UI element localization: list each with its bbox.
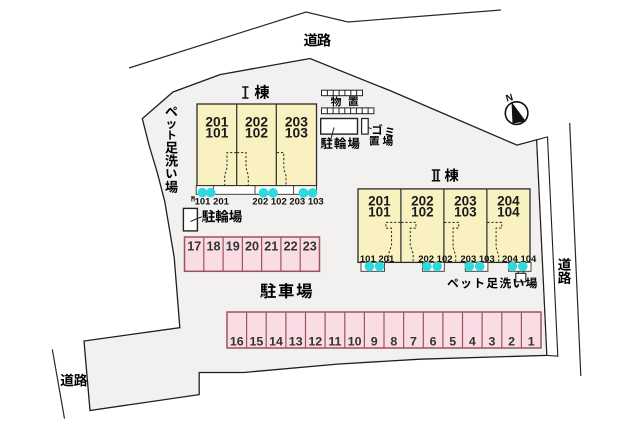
- svg-text:102: 102: [245, 125, 268, 140]
- svg-text:101: 101: [205, 125, 228, 140]
- svg-text:6: 6: [430, 335, 437, 349]
- svg-text:103: 103: [285, 125, 308, 140]
- svg-text:202 102 203 103: 202 102 203 103: [252, 197, 323, 208]
- svg-text:101 201: 101 201: [195, 197, 230, 208]
- svg-text:17: 17: [187, 239, 201, 253]
- svg-text:3: 3: [489, 335, 496, 349]
- svg-text:101: 101: [368, 205, 391, 220]
- svg-text:22: 22: [284, 239, 298, 253]
- svg-text:16: 16: [230, 335, 244, 349]
- svg-text:4: 4: [469, 335, 476, 349]
- svg-text:14: 14: [269, 335, 283, 349]
- svg-text:18: 18: [206, 239, 220, 253]
- svg-text:13: 13: [289, 335, 303, 349]
- svg-text:19: 19: [226, 239, 240, 253]
- svg-text:11: 11: [328, 335, 341, 349]
- svg-text:7: 7: [410, 335, 417, 349]
- svg-text:12: 12: [308, 335, 322, 349]
- svg-text:5: 5: [449, 335, 456, 349]
- svg-text:21: 21: [264, 239, 278, 253]
- svg-text:9: 9: [371, 335, 378, 349]
- svg-text:103: 103: [454, 205, 477, 220]
- svg-text:2: 2: [508, 335, 515, 349]
- svg-text:23: 23: [303, 239, 317, 253]
- svg-text:20: 20: [245, 239, 259, 253]
- svg-text:15: 15: [250, 335, 264, 349]
- svg-text:102: 102: [411, 205, 434, 220]
- svg-text:10: 10: [348, 335, 362, 349]
- svg-text:1: 1: [528, 335, 535, 349]
- svg-text:104: 104: [497, 205, 520, 220]
- svg-text:8: 8: [390, 335, 397, 349]
